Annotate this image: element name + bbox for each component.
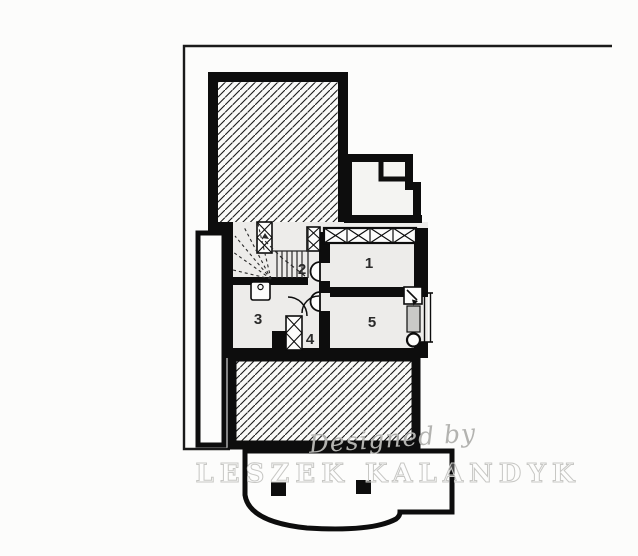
cleanout-circle-icon xyxy=(407,334,420,347)
floor-plan-canvas: 1 2 3 4 5 Designed by LESZEK KALANDYK xyxy=(0,0,638,556)
floor-plan-drawing: 1 2 3 4 5 Designed by LESZEK KALANDYK xyxy=(0,0,638,556)
watermark-name-text: LESZEK KALANDYK xyxy=(196,459,581,489)
window-band-icon xyxy=(324,228,416,243)
upper-hatched-slab xyxy=(213,77,343,227)
room-3-label: 3 xyxy=(254,311,262,328)
lightwell-strip xyxy=(198,233,224,445)
wall-room4-right xyxy=(319,311,330,358)
hall-column-icon xyxy=(307,227,320,251)
room-4-label: 4 xyxy=(306,331,315,348)
wall-entry-bottom xyxy=(344,215,422,223)
chimney-flue-group xyxy=(404,287,422,347)
wall-room3-step xyxy=(272,331,286,350)
room-2-label: 2 xyxy=(298,261,306,278)
sink-icon xyxy=(251,282,270,300)
duct-icon xyxy=(407,306,420,332)
wall-left xyxy=(225,222,233,358)
chimney-column-icon xyxy=(286,316,302,350)
room-5-label: 5 xyxy=(368,314,376,331)
room-1-label: 1 xyxy=(365,255,373,272)
